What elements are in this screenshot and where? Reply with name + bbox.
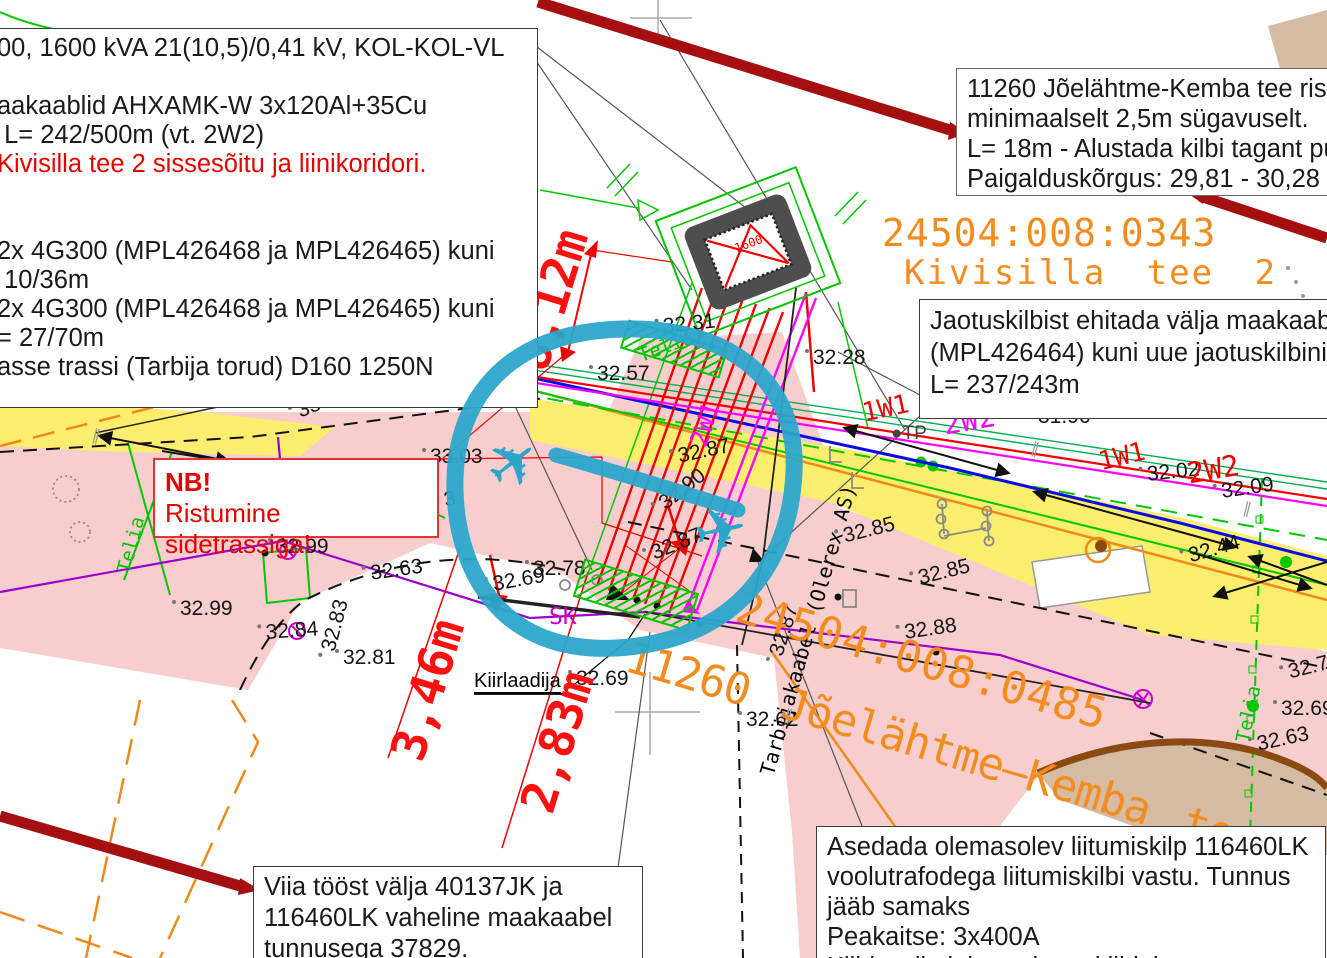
callout-line: tunnusega 37829. [264,934,632,958]
callout-line: = 27/70m [0,324,527,353]
callout-line: L= 18m - Alustada kilbi tagant puu [967,134,1327,164]
callout-line: (MPL426464) kuni uue jaotuskilbini J [930,337,1327,369]
callout-line: Peakaitse: 3x400A [827,922,1315,952]
callout-distribution-cabinet: Jaotuskilbist ehitada välja maakaabe(MPL… [919,299,1327,419]
callout-line: aakaablid AHXAMK-W 3x120Al+35Cu [0,92,527,121]
site-plan-page: 24504:008:0343 Kivisilla tee 2 24504:008… [0,0,1327,958]
callout-line: 10/36m [0,266,527,295]
callout-line: Asedada olemasolev liitumiskilp 116460LK [827,832,1315,862]
callout-line: voolutrafodega liitumiskilbi vastu. Tunn… [827,862,1315,892]
callout-road-crossing: 11260 Jõelähtme-Kemba tee ristuminimaals… [956,68,1327,196]
callout-line: jääb samaks [827,892,1315,922]
callout-line: Jaotuskilbist ehitada välja maakaabe [930,305,1327,337]
nb-title: NB! [165,467,427,498]
callout-line [0,63,527,92]
callout-line: 2x 4G300 (MPL426468 ja MPL426465) kuni [0,295,527,324]
green-arrow-icon [638,200,658,220]
callout-line: Kivisilla tee 2 sissesõitu ja liinikorid… [0,150,527,179]
callout-remove-cable: Viia tööst välja 40137JK ja116460LK vahe… [253,866,643,958]
callout-line: Viia tööst välja 40137JK ja [264,872,632,903]
callout-line: L= 237/243m [930,369,1327,401]
callout-line: 00, 1600 kVA 21(10,5)/0,41 kV, KOL-KOL-V… [0,34,527,63]
callout-line: asse trassi (Tarbija torud) D160 1250N [0,353,527,382]
callout-line [0,208,527,237]
callout-cable-specs: 00, 1600 kVA 21(10,5)/0,41 kV, KOL-KOL-V… [0,28,538,408]
callout-replace-cabinet: Asedada olemasolev liitumiskilp 116460LK… [816,826,1326,958]
nb-warning-box: NB! Ristumine sidetrassiga! [153,458,439,538]
callout-line [0,179,527,208]
callout-line: Paigalduskõrgus: 29,81 - 30,28 [967,164,1327,194]
callout-line: 116460LK vaheline maakaabel [264,903,632,934]
callout-line: minimaalselt 2,5m sügavuselt. [967,104,1327,134]
nb-text: Ristumine sidetrassiga! [165,498,427,560]
callout-line: Kilbist viia juhtmed uue kilbini [827,952,1315,958]
callout-line: 2x 4G300 (MPL426468 ja MPL426465) kuni [0,237,527,266]
callout-line: L= 242/500m (vt. 2W2) [0,121,527,150]
transformer-substation-icon [656,167,840,337]
tree-trunk-icon [1095,540,1107,552]
callout-line: 11260 Jõelähtme-Kemba tee ristu [967,74,1327,104]
